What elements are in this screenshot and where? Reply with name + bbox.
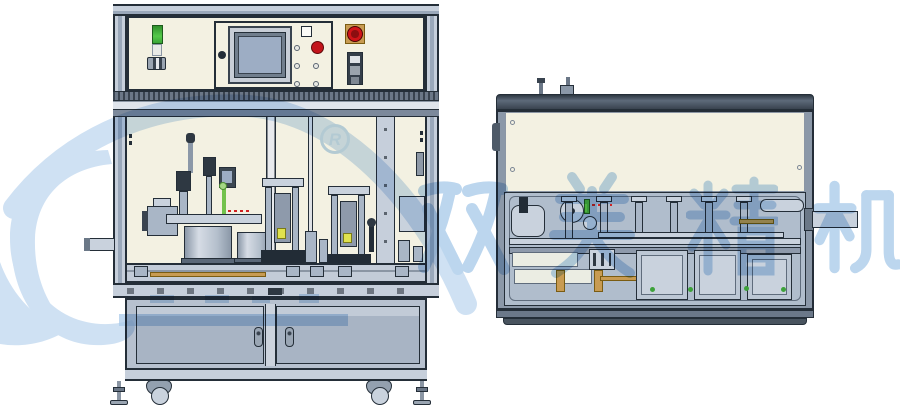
conveyor-pallet [338, 266, 352, 277]
frame-post-right [425, 16, 439, 291]
infeed-stub-cap [84, 238, 90, 251]
status-dot-green [688, 287, 693, 292]
green-sensor-strip [584, 199, 590, 214]
cabinet-door-right [276, 306, 420, 364]
membrane-button [313, 81, 319, 87]
door-handle [254, 327, 263, 347]
cylinder-rod-b [206, 176, 212, 216]
caster-wheel [151, 387, 169, 405]
guide-rail-upper [509, 238, 801, 245]
panel-screw [510, 167, 515, 172]
press-station-column [358, 195, 365, 255]
tooling-plate [512, 252, 578, 267]
cylinder-cap-a [176, 171, 191, 191]
cabinet-divider [265, 304, 276, 366]
emergency-stop-button [347, 26, 363, 42]
cabinet-door-left [136, 306, 264, 364]
assembly-machine-front-view [0, 0, 460, 410]
vent-strip [113, 91, 439, 101]
leveling-foot-nut [416, 387, 428, 392]
leveling-foot-nut [113, 387, 125, 392]
hinge-dot [420, 138, 423, 142]
cylinder-body-a [179, 191, 188, 215]
part-nest-inner [641, 255, 683, 295]
press-station-crossbar [328, 186, 370, 195]
lever-knob [367, 218, 376, 227]
conveyor-pallet [286, 266, 300, 277]
tooling-block [413, 246, 423, 262]
membrane-button [294, 81, 300, 87]
wall-sensor-box [416, 152, 424, 176]
linear-slide-column [565, 202, 573, 242]
pulley-housing [511, 205, 545, 237]
rotary-table-plate [166, 214, 262, 224]
grid-block-pattern [593, 253, 611, 266]
press-station-column [292, 187, 299, 253]
machine-top-bar [496, 94, 814, 110]
column-screw-dots [384, 128, 387, 274]
cylinder-cap-b [203, 157, 216, 176]
drive-pulley-small [583, 216, 597, 230]
selector-window-top [350, 56, 360, 63]
selector-window-mid [350, 66, 360, 75]
membrane-button [294, 63, 300, 69]
green-guide-pole [222, 186, 226, 214]
mid-beam [113, 109, 439, 117]
top-cover-panel [505, 112, 805, 192]
selector-window-low [351, 77, 359, 84]
status-dot-green [650, 287, 655, 292]
hinge-dot [420, 131, 423, 135]
hmi-key-dot [218, 51, 226, 59]
red-dash-line [228, 210, 252, 212]
signal-tower-base [152, 44, 162, 56]
status-dot-green [781, 287, 786, 292]
hinge-dot [129, 134, 132, 138]
machine-illustration: R 双 美 精 机 [0, 0, 900, 410]
hmi-screen [238, 36, 282, 74]
conveyor-pallet [134, 266, 148, 277]
horizontal-cylinder [760, 199, 804, 212]
probe-rod [188, 139, 193, 173]
hinge-dot [129, 141, 132, 145]
start-button-red [311, 41, 324, 54]
press-indicator-chip [277, 228, 286, 239]
side-handle-tab [492, 123, 500, 151]
press-station-column [331, 195, 338, 255]
status-dot-green [744, 286, 749, 291]
lifting-post-head [537, 78, 545, 83]
leveling-foot-pad [110, 400, 128, 405]
lever-stick [369, 224, 374, 252]
loader-end-cap [142, 211, 148, 231]
press-station-crossbar [262, 178, 304, 187]
tooling-plate [514, 269, 592, 284]
green-guide-ball [219, 182, 227, 190]
gold-rail-strip [739, 219, 774, 224]
light-beam [113, 101, 439, 109]
base-bar [496, 310, 814, 318]
press-station-base [261, 250, 305, 263]
conveyor-pallet [395, 266, 409, 277]
panel-screw [797, 165, 802, 170]
probe-tip [186, 133, 195, 143]
dark-post [519, 197, 528, 213]
panel-screw [510, 120, 515, 125]
door-handle [285, 327, 294, 347]
signal-tower-green-light [152, 25, 163, 44]
gold-guide-block [594, 270, 603, 292]
output-arm [812, 211, 858, 228]
frame-top-beam [113, 4, 439, 16]
signal-tower-bracket [147, 57, 166, 70]
center-latch [268, 288, 282, 295]
tooling-block [398, 240, 410, 262]
press-station-column [265, 187, 272, 253]
assembly-machine-side-view [460, 0, 900, 410]
tooling-block [305, 231, 317, 263]
membrane-button [313, 63, 319, 69]
part-nest-inner [699, 255, 736, 295]
base-skirt [503, 318, 807, 325]
conveyor-pallet [310, 266, 324, 277]
linear-rail-strip [150, 272, 266, 277]
button-square-white [301, 26, 312, 37]
press-indicator-chip [343, 233, 352, 243]
caster-wheel [371, 387, 389, 405]
gold-guide-block [556, 270, 565, 292]
frame-post-left [113, 16, 127, 291]
side-panel-box [399, 196, 425, 232]
membrane-button [294, 45, 300, 51]
leveling-foot-pad [413, 400, 431, 405]
